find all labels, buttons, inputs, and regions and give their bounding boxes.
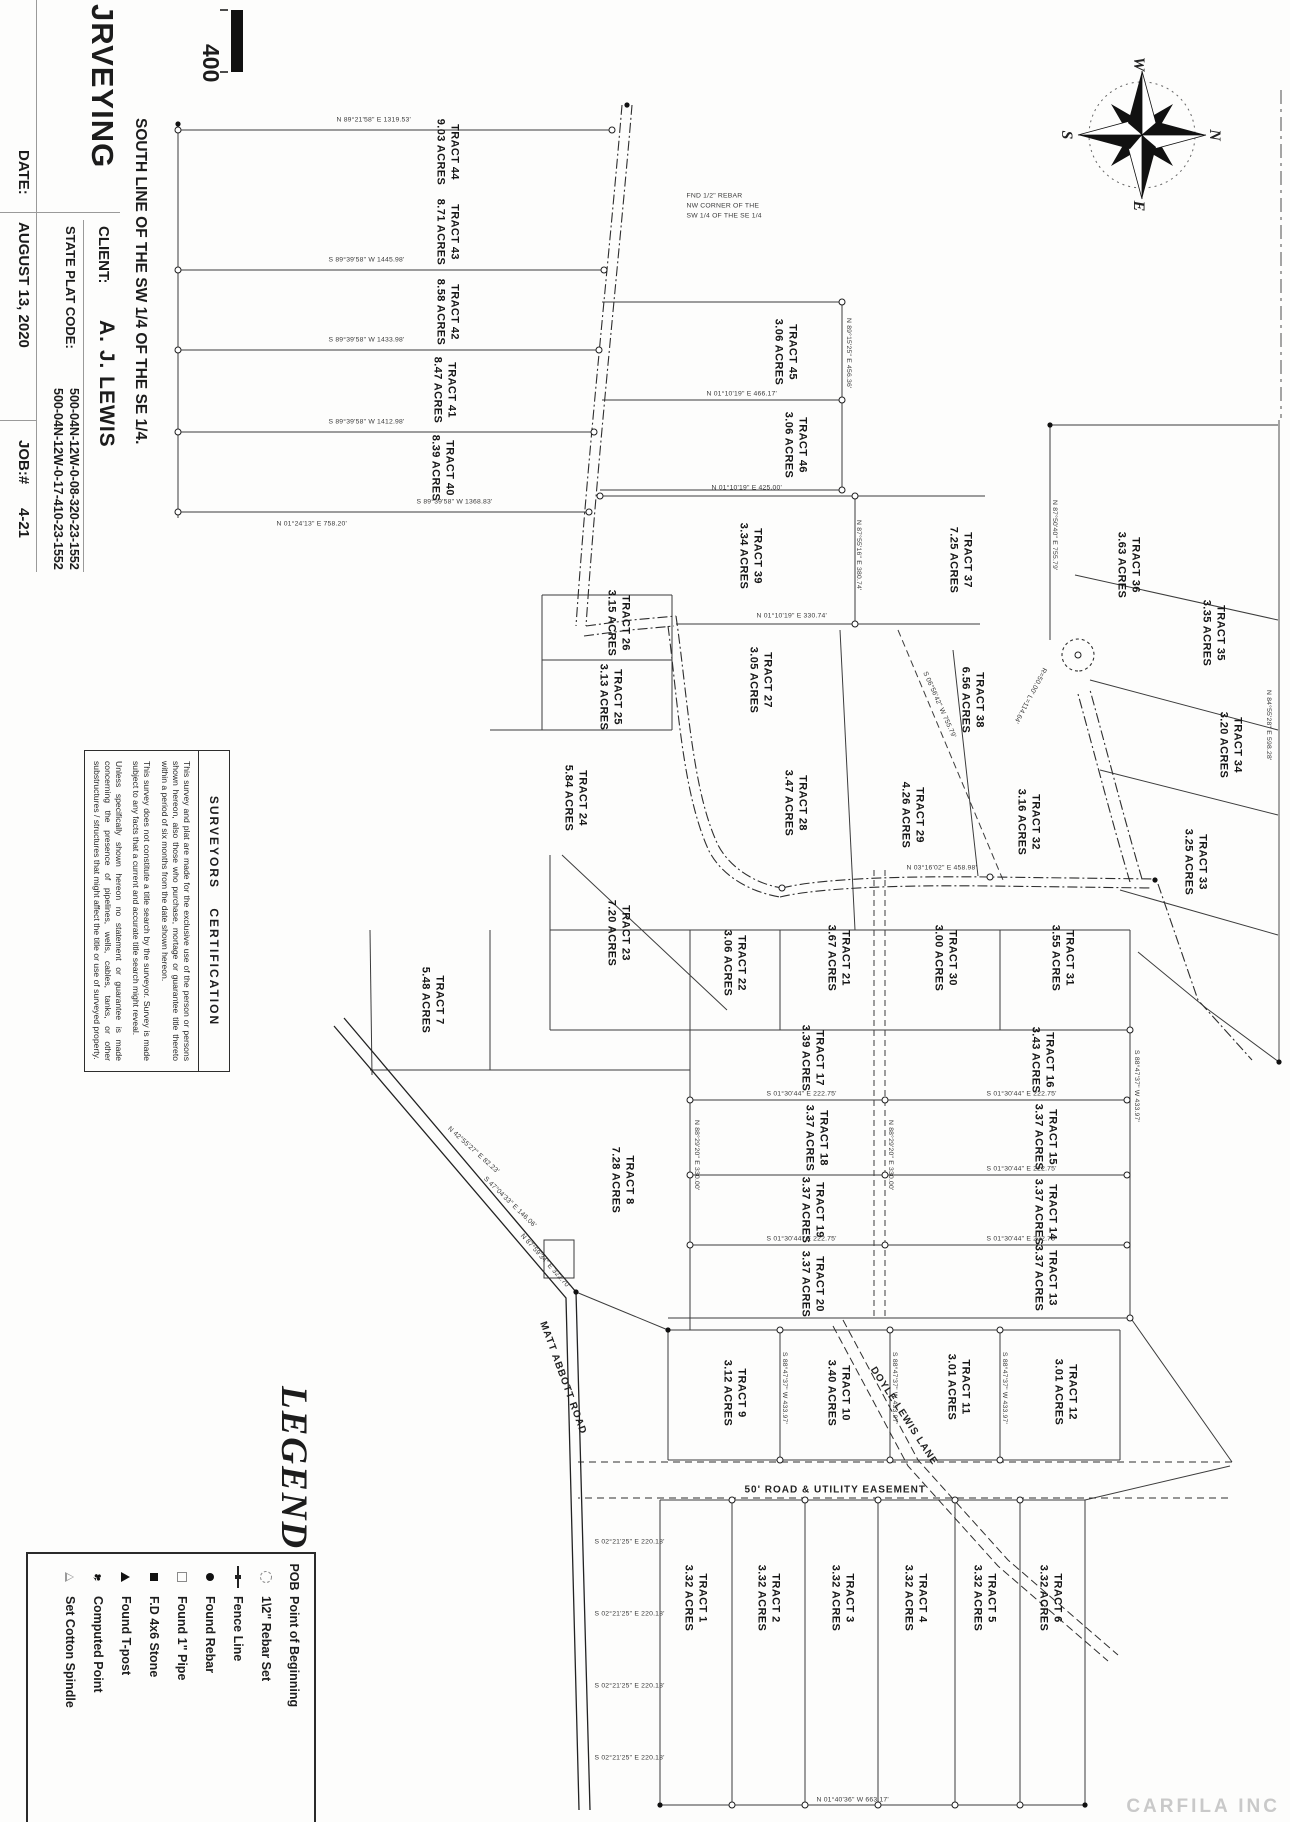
titleblock-divider [83,220,84,572]
titleblock-divider [36,0,37,572]
bearing-label: S 01°30'44" E 222.75' [987,1091,1057,1098]
found-pipe-icon [177,1564,187,1590]
tract-label: TRACT 23.32 ACRES [754,1565,783,1632]
tract-label: TRACT 438.71 ACRES [433,199,462,266]
legend-item: Fence Line [224,1554,252,1822]
bearing-label: N 89°21'58" E 1319.53' [337,117,411,124]
tract-label: TRACT 313.55 ACRES [1048,925,1077,992]
tract-label: TRACT 363.63 ACRES [1114,532,1143,599]
surveyor-firm-name-partial: JRVEYING [84,4,120,168]
legend-item-label: Set Cotton Spindle [63,1596,77,1708]
bearing-label: S 01°30'44" E 222.75' [767,1236,837,1243]
bearing-label: N 88°29'20" E 330.00' [693,1120,700,1191]
plat-location-title: SOUTH LINE OF THE SW 1/4 OF THE SE 1/4. [131,118,149,444]
bearing-label: N 03°16'02" E 458.98' [907,865,978,872]
legend-item-label: Found 1" Pipe [175,1596,189,1680]
bearing-label: N 84°55'28" E 598.28' [1265,690,1272,761]
tract-label: TRACT 428.58 ACRES [433,279,462,346]
legend-item: Found T-post [112,1554,140,1822]
tract-label: TRACT 418.47 ACRES [430,357,459,424]
bearing-label: S 01°30'44" E 222.75' [767,1091,837,1098]
tract-label: TRACT 75.48 ACRES [418,967,447,1034]
tract-label: TRACT 193.37 ACRES [798,1177,827,1244]
compass-south-label: S [1057,131,1075,140]
tract-label: TRACT 87.28 ACRES [608,1147,637,1214]
tract-label: TRACT 153.37 ACRES [1031,1104,1060,1171]
legend-item-label: Point of Beginning [287,1596,301,1707]
tract-label: TRACT 453.06 ACRES [771,319,800,386]
tract-label: TRACT 173.39 ACRES [798,1025,827,1092]
tract-label: TRACT 13.32 ACRES [681,1565,710,1632]
client-label: CLIENT: [95,226,112,284]
bearing-label: S 88°47'37" W 433.97' [1001,1352,1008,1424]
tract-label: TRACT 237.20 ACRES [604,900,633,967]
legend-item: F.D 4x6 Stone [140,1554,168,1822]
plat-drawing-canvas: JRVEYING SOUTH LINE OF THE SW 1/4 OF THE… [0,0,1290,1822]
tract-label: TRACT 203.37 ACRES [798,1251,827,1318]
found-rebar-icon [206,1564,214,1590]
rebar-set-icon [260,1564,272,1590]
titleblock-divider [0,212,120,213]
tract-label: TRACT 294.26 ACRES [898,782,927,849]
scanned-plat-page: JRVEYING SOUTH LINE OF THE SW 1/4 OF THE… [0,0,1290,1822]
bearing-label: S 89°39'58" W 1445.98' [329,257,405,264]
compass-west-label: W [1129,57,1147,71]
compass-north-label: N [1205,129,1223,141]
tract-label: TRACT 93.12 ACRES [720,1360,749,1427]
creek-and-road [576,105,1252,1060]
legend-item-label: F.D 4x6 Stone [147,1596,161,1677]
legend-item: Set Cotton Spindle [56,1554,84,1822]
legend-item: ♣Computed Point [84,1554,112,1822]
bearing-label: S 01°30'44" E 222.75' [987,1236,1057,1243]
bearing-label: N 89°15'25" E 456.36' [845,318,852,389]
legend-item: Found Rebar [196,1554,224,1822]
tract-label: TRACT 449.03 ACRES [433,119,462,186]
legend-item-label: Fence Line [231,1596,245,1661]
tract-label: TRACT 113.01 ACRES [944,1354,973,1421]
bearing-label: N 88°29'20" E 330.00' [887,1120,894,1191]
tract-label: TRACT 303.00 ACRES [931,925,960,992]
legend-item: POBPoint of Beginning [280,1554,308,1822]
scale-value: 400 [197,44,224,82]
legend-item-label: Computed Point [91,1596,105,1693]
tract-label: TRACT 245.84 ACRES [561,765,590,832]
bearing-label: S 88°47'37" W 433.97' [781,1352,788,1424]
computed-point-icon: ♣ [92,1564,104,1590]
legend-title: LEGEND [272,1386,315,1550]
compass-east-label: E [1129,201,1147,212]
pob-icon: POB [287,1564,301,1590]
section-lines [1279,90,1281,1062]
tract-label: TRACT 353.35 ACRES [1199,600,1228,667]
t-post-icon [122,1564,131,1590]
bearing-label: N 01°10'19" E 466.17' [707,391,778,398]
job-number-value: 4-21 [15,508,32,538]
certification-paragraph: This survey does not constitute a title … [130,761,152,1061]
fence-line-icon [237,1564,239,1590]
certification-paragraph: This survey and plat are made for the ex… [158,761,192,1061]
job-number-label: JOB:# [15,440,32,484]
bearing-label: N 01°10'19" E 425.00' [712,485,783,492]
scanner-watermark: CARFILA INC [1126,1796,1280,1818]
bearing-label: FND 1/2" REBAR [687,193,743,200]
legend-item: Found 1" Pipe [168,1554,196,1822]
tract-label: TRACT 63.32 ACRES [1036,1565,1065,1632]
state-plat-code-1: 500-04N-12W-0-08-320-23-1552 [67,388,81,570]
bearing-label: S 89°39'58" W 1368.83' [417,499,493,506]
tract-label: TRACT 123.01 ACRES [1051,1359,1080,1426]
bearing-label: N 01°10'19" E 330.74' [757,613,828,620]
bearing-label: S 89°39'58" W 1412.98' [329,419,405,426]
legend-box: POBPoint of Beginning1\2" Rebar SetFence… [26,1552,316,1822]
bearing-label: S 01°30'44" E 222.75' [987,1166,1057,1173]
state-plat-code-label: STATE PLAT CODE: [63,226,78,349]
tract-label: TRACT 283.47 ACRES [781,770,810,837]
legend-item-label: Found T-post [119,1596,133,1675]
certification-block: SURVEYORS CERTIFICATION This survey and … [84,750,230,1072]
tract-label: TRACT 386.56 ACRES [958,667,987,734]
tract-label: TRACT 408.39 ACRES [428,435,457,502]
bearing-label: S 02°21'25" E 220.18' [595,1539,665,1546]
date-label: DATE: [15,150,32,195]
compass-rose-icon [1078,71,1206,199]
bearing-label: S 02°21'25" E 220.18' [595,1683,665,1690]
state-plat-code-2: 500-04N-12W-0-17-410-23-1552 [51,388,65,570]
titleblock-divider [0,420,37,421]
legend-item-label: Found Rebar [203,1596,217,1673]
tract-label: TRACT 103.40 ACRES [824,1360,853,1427]
tract-label: TRACT 343.20 ACRES [1216,712,1245,779]
tract-label: TRACT 163.43 ACRES [1028,1027,1057,1094]
bearing-label: S 88°47'37" W 433.97' [1133,1050,1140,1122]
bearing-label: N 87°55'16" E 380.74' [855,520,862,591]
tract-label: TRACT 377.25 ACRES [946,527,975,594]
client-name: A. J. LEWIS [94,320,118,448]
tract-label: TRACT 463.06 ACRES [781,412,810,479]
certification-paragraph: Unless specifically shown hereon no stat… [91,761,125,1061]
tract-label: TRACT 53.32 ACRES [970,1565,999,1632]
bearing-label: NW CORNER OF THE [687,203,760,210]
bearing-label: S 02°21'25" E 220.18' [595,1755,665,1762]
certification-heading: SURVEYORS CERTIFICATION [198,751,229,1071]
tract-label: TRACT 273.05 ACRES [746,647,775,714]
tract-label: TRACT 263.15 ACRES [604,590,633,657]
tract-label: TRACT 33.32 ACRES [828,1565,857,1632]
bearing-label: N 01°24'13" E 758.20' [277,521,348,528]
cotton-spindle-icon [66,1564,75,1590]
access-lane [874,870,885,1320]
stone-icon [150,1564,158,1590]
bearing-label: SW 1/4 OF THE SE 1/4 [687,213,762,220]
tract-label: TRACT 213.67 ACRES [824,925,853,992]
bearing-label: N 87°50'40" E 755.79' [1051,500,1058,571]
tract-label: TRACT 393.34 ACRES [736,523,765,590]
tract-label: TRACT 333.25 ACRES [1181,829,1210,896]
tract-label: TRACT 323.16 ACRES [1014,789,1043,856]
tract-label: TRACT 223.06 ACRES [720,930,749,997]
bearing-label: S 02°21'25" E 220.18' [595,1611,665,1618]
date-value: AUGUST 13, 2020 [15,222,32,348]
certification-paragraphs: This survey and plat are made for the ex… [91,751,192,1071]
bearing-label: S 89°39'58" W 1433.98' [329,337,405,344]
tract-label: TRACT 133.37 ACRES [1031,1245,1060,1312]
legend-item: 1\2" Rebar Set [252,1554,280,1822]
legend-item-label: 1\2" Rebar Set [259,1596,273,1681]
road-name-label: 50' ROAD & UTILITY EASEMENT [745,1485,926,1496]
tract-label: TRACT 43.32 ACRES [901,1565,930,1632]
tract-label: TRACT 253.13 ACRES [596,664,625,731]
bearing-label: N 01°40'36" W 663.17' [817,1797,889,1804]
tract-label: TRACT 183.37 ACRES [802,1105,831,1172]
